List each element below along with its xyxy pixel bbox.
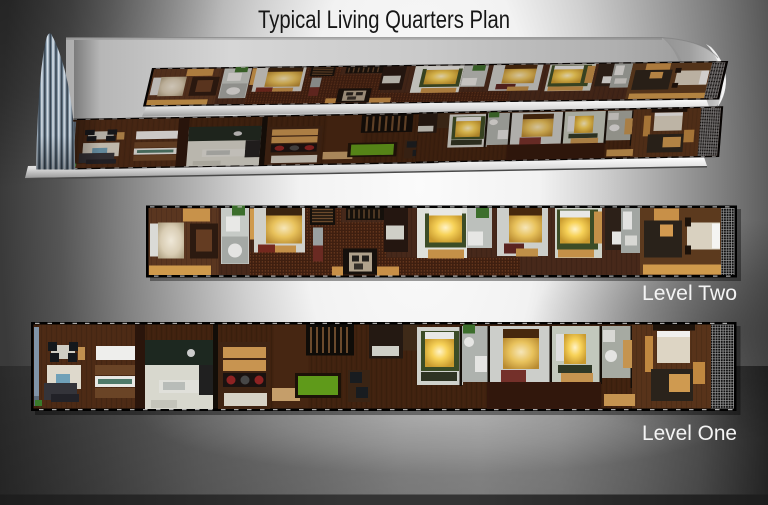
svg-text:Typical Living Quarters Plan: Typical Living Quarters Plan <box>258 6 510 34</box>
svg-text:Level One: Level One <box>642 422 737 445</box>
svg-text:Level Two: Level Two <box>642 282 737 305</box>
